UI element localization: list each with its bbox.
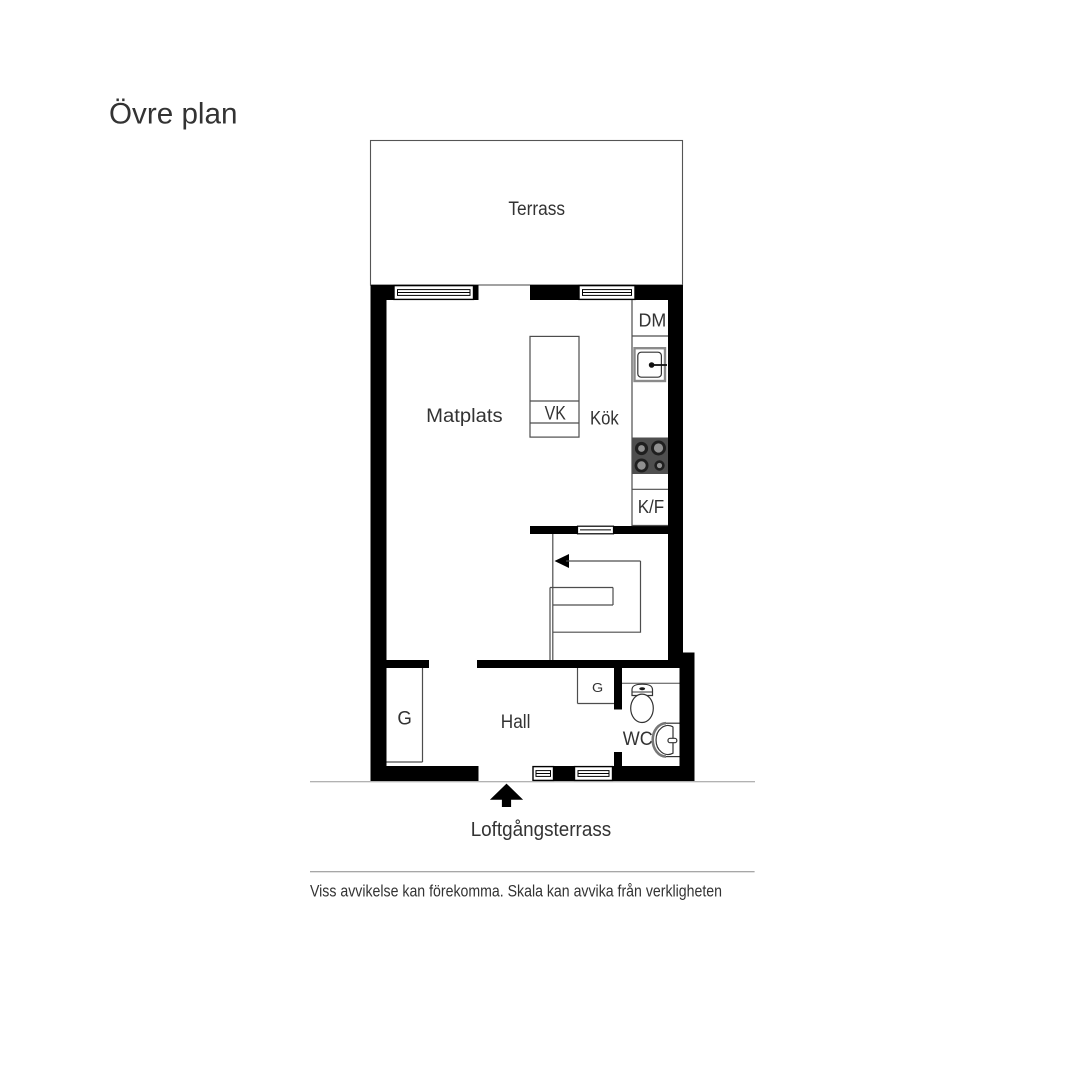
- svg-text:Övre plan: Övre plan: [109, 98, 238, 131]
- svg-text:WC: WC: [623, 729, 653, 750]
- svg-text:VK: VK: [545, 403, 566, 424]
- svg-text:Hall: Hall: [501, 712, 531, 733]
- svg-text:Viss avvikelse kan förekomma.: Viss avvikelse kan förekomma. Skala kan …: [310, 882, 722, 900]
- svg-text:Loftgångsterrass: Loftgångsterrass: [471, 819, 612, 841]
- svg-text:K/F: K/F: [638, 496, 665, 517]
- svg-text:G: G: [592, 680, 603, 695]
- svg-text:Matplats: Matplats: [426, 406, 503, 427]
- svg-text:G: G: [397, 709, 412, 730]
- svg-text:Kök: Kök: [590, 409, 619, 430]
- svg-text:Terrass: Terrass: [508, 199, 565, 220]
- svg-text:DM: DM: [639, 310, 667, 331]
